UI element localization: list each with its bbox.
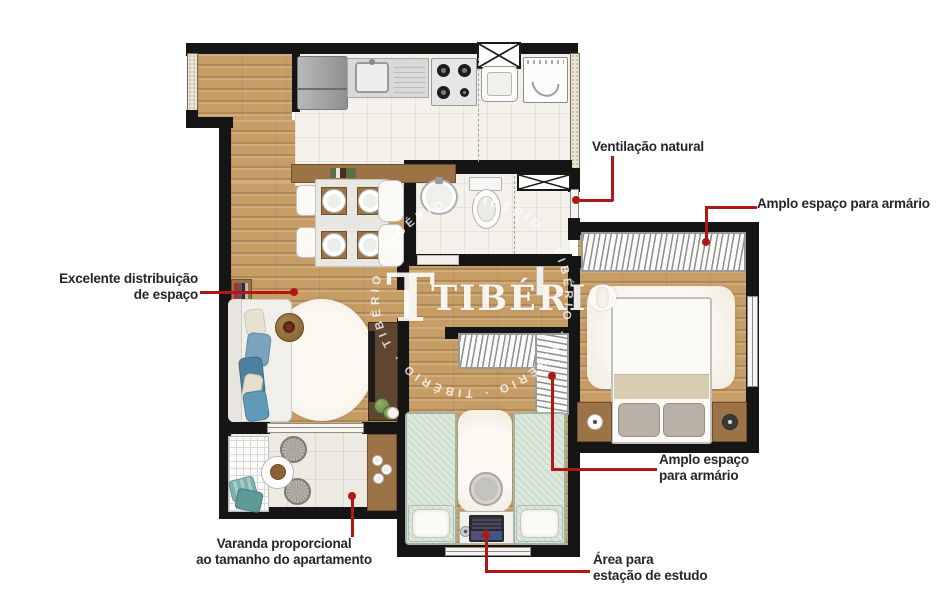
leader-ventilation-v <box>611 156 614 201</box>
leader-ventilation-h <box>577 199 613 202</box>
leader-study-v <box>485 536 488 572</box>
leader-balcony-v <box>351 497 354 537</box>
leader-study-h <box>485 570 590 573</box>
brand-logo: T TIBÉRIO <box>386 266 620 330</box>
brand-monogram: T <box>386 270 435 326</box>
label-study: Área para estação de estudo <box>593 552 707 584</box>
label-distribution: Excelente distribuição de espaço <box>30 271 198 303</box>
label-ventilation: Ventilação natural <box>592 139 704 155</box>
leader-wardrobe-master-dot <box>702 238 710 246</box>
floor-plan: TIBÉRIO · TIBÉRIO · TIBÉRIO · TIBÉRIO · … <box>0 0 950 596</box>
leader-ventilation-dot <box>572 196 580 204</box>
leader-wardrobe-master-v <box>705 206 708 240</box>
leader-wardrobe2-v <box>551 376 554 470</box>
leader-balcony-dot <box>348 492 356 500</box>
leader-wardrobe2-h <box>551 468 657 471</box>
leader-study-arrow <box>481 528 491 537</box>
label-balcony: Varanda proporcional ao tamanho do apart… <box>175 536 393 568</box>
label-wardrobe-second: Amplo espaço para armário <box>659 452 749 484</box>
leader-distribution-h <box>200 291 293 294</box>
brand-wordmark: TIBÉRIO <box>431 278 620 319</box>
label-wardrobe-master: Amplo espaço para armário <box>757 196 930 212</box>
leader-distribution-dot <box>290 288 298 296</box>
leader-wardrobe-master-h <box>706 206 757 209</box>
leader-wardrobe2-dot <box>548 372 556 380</box>
